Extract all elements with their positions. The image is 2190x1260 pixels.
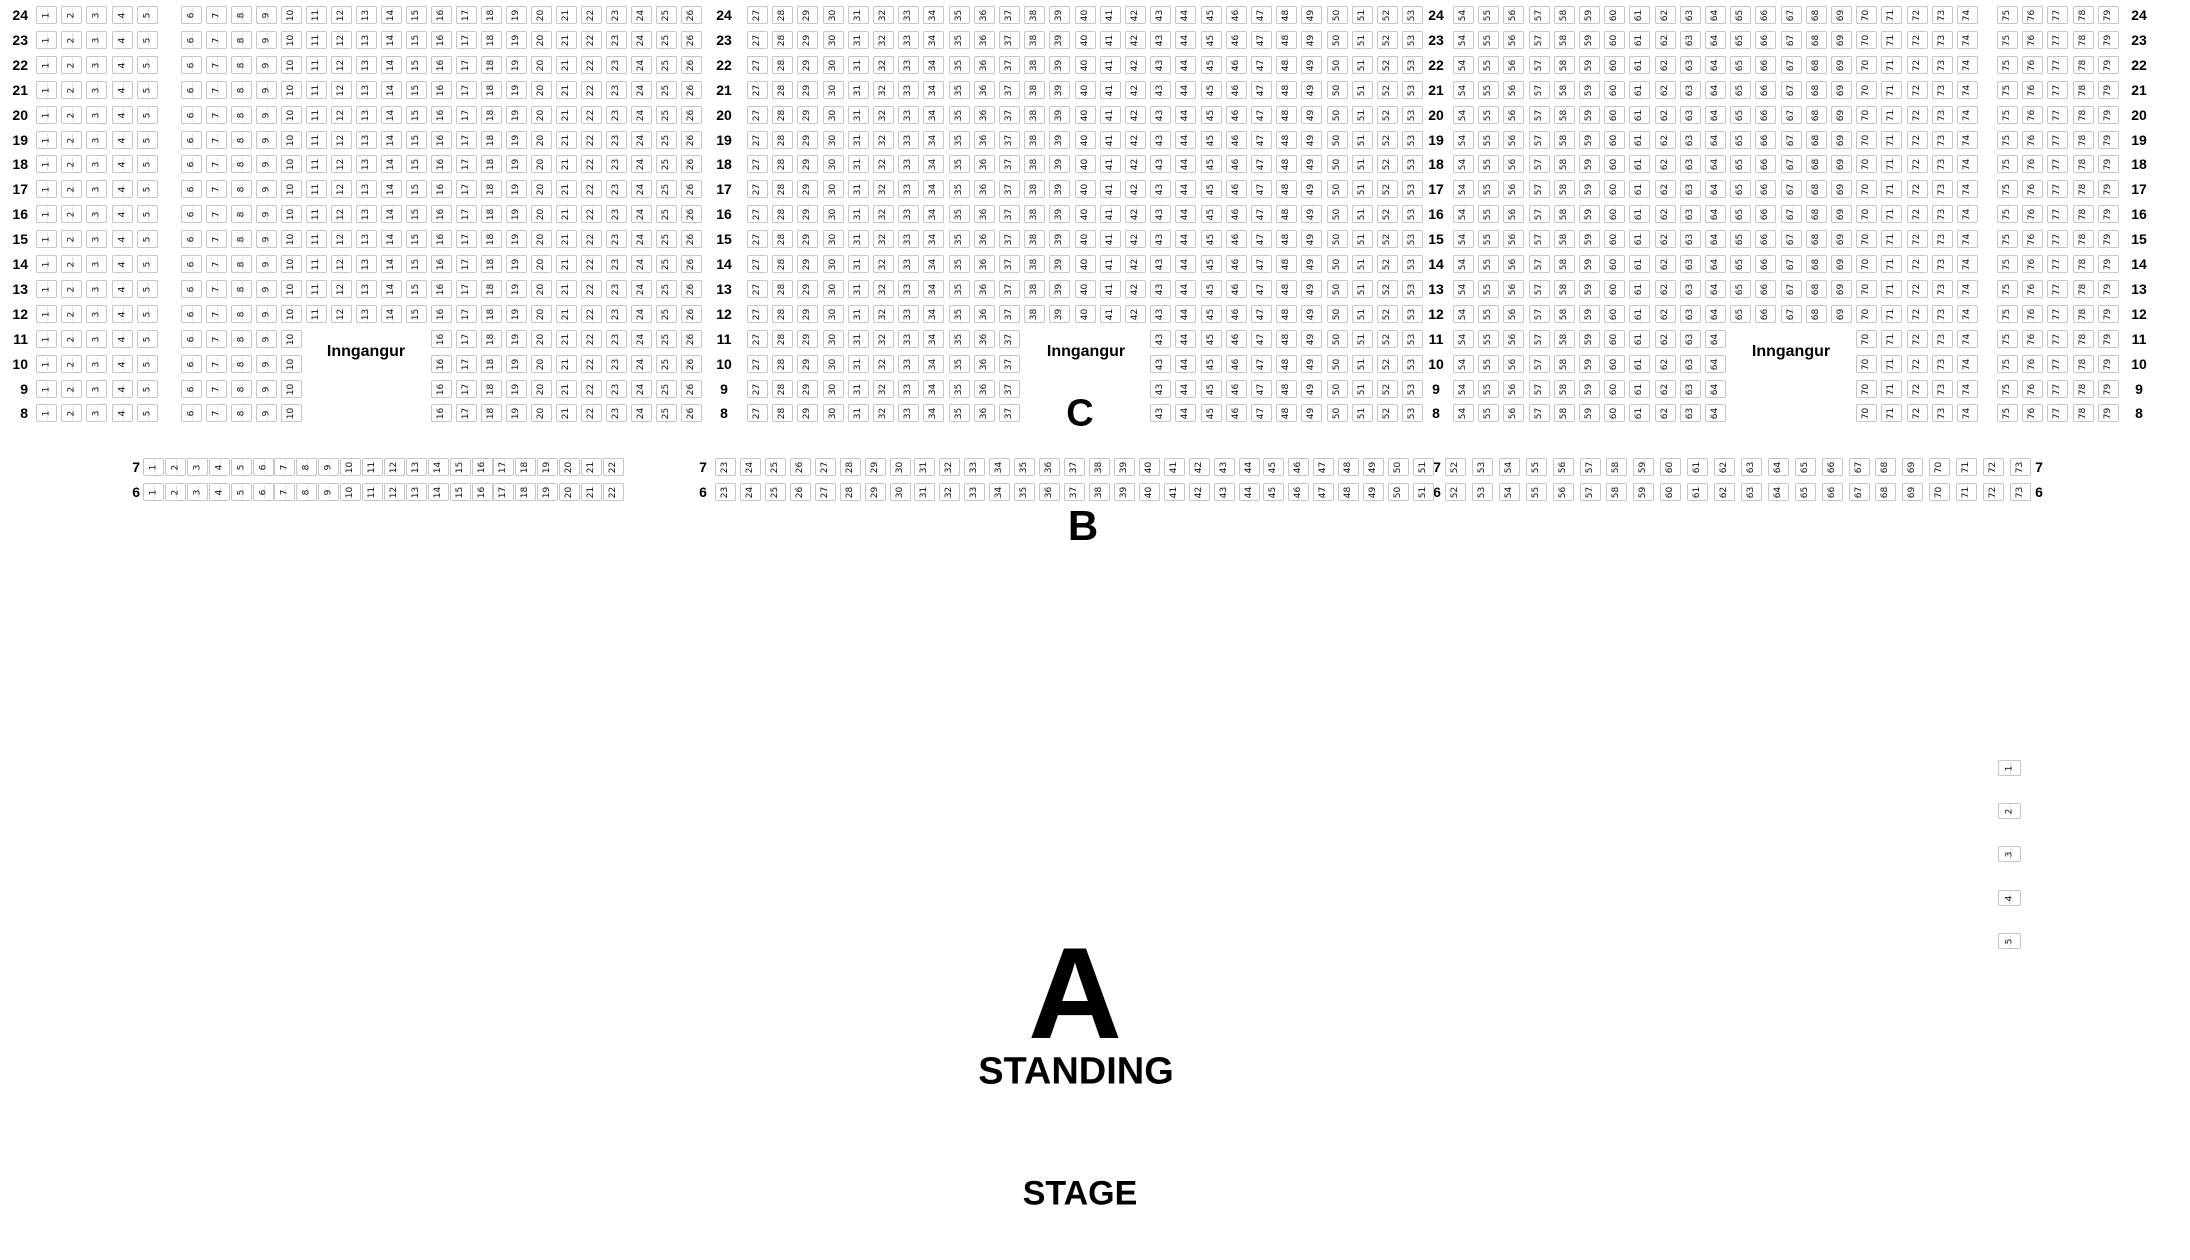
seat[interactable]: 28 — [772, 56, 793, 74]
seat[interactable]: 52 — [1377, 6, 1398, 24]
seat[interactable]: 58 — [1554, 106, 1575, 124]
seat[interactable]: 30 — [823, 280, 844, 298]
seat[interactable]: 68 — [1806, 155, 1827, 173]
seat[interactable]: 60 — [1604, 355, 1625, 373]
seat[interactable]: 35 — [949, 255, 970, 273]
seat[interactable]: 63 — [1680, 106, 1701, 124]
seat[interactable]: 64 — [1705, 6, 1726, 24]
seat[interactable]: 75 — [1997, 56, 2018, 74]
seat[interactable]: 67 — [1781, 31, 1802, 49]
seat[interactable]: 21 — [581, 458, 602, 476]
seat[interactable]: 42 — [1125, 6, 1146, 24]
seat[interactable]: 60 — [1604, 205, 1625, 223]
seat[interactable]: 56 — [1503, 355, 1524, 373]
seat[interactable]: 31 — [848, 56, 869, 74]
seat[interactable]: 18 — [515, 458, 536, 476]
seat[interactable]: 57 — [1529, 305, 1550, 323]
seat[interactable]: 78 — [2073, 81, 2094, 99]
seat[interactable]: 66 — [1822, 483, 1843, 501]
seat[interactable]: 15 — [406, 280, 427, 298]
seat[interactable]: 65 — [1795, 483, 1816, 501]
seat[interactable]: 58 — [1554, 280, 1575, 298]
seat[interactable]: 32 — [939, 483, 960, 501]
seat[interactable]: 51 — [1413, 458, 1434, 476]
seat[interactable]: 42 — [1125, 131, 1146, 149]
seat[interactable]: 76 — [2022, 255, 2043, 273]
seat[interactable]: 61 — [1629, 106, 1650, 124]
seat[interactable]: 15 — [406, 205, 427, 223]
seat[interactable]: 65 — [1730, 6, 1751, 24]
seat[interactable]: 51 — [1352, 205, 1373, 223]
seat[interactable]: 66 — [1755, 305, 1776, 323]
seat[interactable]: 53 — [1402, 6, 1423, 24]
seat[interactable]: 27 — [747, 131, 768, 149]
seat[interactable]: 47 — [1251, 205, 1272, 223]
seat[interactable]: 72 — [1907, 155, 1928, 173]
seat[interactable]: 53 — [1402, 106, 1423, 124]
seat[interactable]: 28 — [772, 106, 793, 124]
seat[interactable]: 46 — [1288, 483, 1309, 501]
seat[interactable]: 70 — [1856, 330, 1877, 348]
seat[interactable]: 78 — [2073, 106, 2094, 124]
seat[interactable]: 15 — [406, 230, 427, 248]
seat[interactable]: 26 — [790, 483, 811, 501]
seat[interactable]: 56 — [1503, 131, 1524, 149]
seat[interactable]: 79 — [2098, 355, 2119, 373]
seat[interactable]: 5 — [137, 280, 158, 298]
seat[interactable]: 7 — [206, 380, 227, 398]
seat[interactable]: 13 — [406, 483, 427, 501]
seat[interactable]: 72 — [1907, 230, 1928, 248]
seat[interactable]: 3 — [187, 458, 208, 476]
seat[interactable]: 31 — [848, 6, 869, 24]
seat[interactable]: 70 — [1929, 458, 1950, 476]
seat[interactable]: 12 — [331, 280, 352, 298]
seat[interactable]: 24 — [631, 180, 652, 198]
seat[interactable]: 76 — [2022, 106, 2043, 124]
seat[interactable]: 53 — [1402, 31, 1423, 49]
seat[interactable]: 7 — [206, 81, 227, 99]
seat[interactable]: 7 — [206, 56, 227, 74]
seat[interactable]: 57 — [1529, 131, 1550, 149]
seat[interactable]: 35 — [949, 380, 970, 398]
seat[interactable]: 30 — [823, 6, 844, 24]
seat[interactable]: 16 — [431, 355, 452, 373]
seat[interactable]: 20 — [531, 155, 552, 173]
seat[interactable]: 55 — [1478, 230, 1499, 248]
seat[interactable]: 42 — [1125, 280, 1146, 298]
seat[interactable]: 18 — [481, 255, 502, 273]
seat[interactable]: 65 — [1730, 81, 1751, 99]
seat[interactable]: 33 — [898, 404, 919, 422]
seat[interactable]: 72 — [1907, 380, 1928, 398]
seat[interactable]: 24 — [631, 230, 652, 248]
seat[interactable]: 23 — [606, 404, 627, 422]
seat[interactable]: 41 — [1100, 305, 1121, 323]
seat[interactable]: 39 — [1049, 305, 1070, 323]
seat[interactable]: 29 — [797, 155, 818, 173]
seat[interactable]: 7 — [206, 31, 227, 49]
seat[interactable]: 75 — [1997, 380, 2018, 398]
seat[interactable]: 72 — [1907, 31, 1928, 49]
seat[interactable]: 79 — [2098, 155, 2119, 173]
seat[interactable]: 44 — [1175, 255, 1196, 273]
seat[interactable]: 4 — [209, 483, 230, 501]
seat[interactable]: 11 — [306, 155, 327, 173]
seat[interactable]: 72 — [1983, 483, 2004, 501]
seat[interactable]: 59 — [1579, 31, 1600, 49]
seat[interactable]: 17 — [456, 180, 477, 198]
seat[interactable]: 47 — [1251, 355, 1272, 373]
seat[interactable]: 19 — [506, 380, 527, 398]
seat[interactable]: 60 — [1660, 458, 1681, 476]
seat[interactable]: 48 — [1276, 56, 1297, 74]
seat[interactable]: 73 — [1932, 31, 1953, 49]
seat[interactable]: 15 — [406, 155, 427, 173]
seat[interactable]: 35 — [949, 205, 970, 223]
seat[interactable]: 54 — [1453, 230, 1474, 248]
seat[interactable]: 33 — [898, 380, 919, 398]
seat[interactable]: 14 — [381, 305, 402, 323]
seat[interactable]: 15 — [450, 483, 471, 501]
seat[interactable]: 23 — [606, 280, 627, 298]
seat[interactable]: 52 — [1377, 255, 1398, 273]
seat[interactable]: 73 — [2010, 458, 2031, 476]
seat[interactable]: 17 — [456, 6, 477, 24]
seat[interactable]: 79 — [2098, 31, 2119, 49]
seat[interactable]: 1 — [36, 230, 57, 248]
seat[interactable]: 32 — [873, 280, 894, 298]
seat[interactable]: 31 — [848, 255, 869, 273]
seat[interactable]: 34 — [989, 458, 1010, 476]
seat[interactable]: 41 — [1100, 255, 1121, 273]
seat[interactable]: 60 — [1604, 404, 1625, 422]
seat[interactable]: 72 — [1907, 355, 1928, 373]
seat[interactable]: 15 — [406, 31, 427, 49]
seat[interactable]: 18 — [481, 56, 502, 74]
seat[interactable]: 4 — [112, 155, 133, 173]
seat[interactable]: 22 — [581, 56, 602, 74]
seat[interactable]: 3 — [187, 483, 208, 501]
seat[interactable]: 55 — [1478, 155, 1499, 173]
seat[interactable]: 16 — [431, 280, 452, 298]
seat[interactable]: 63 — [1680, 355, 1701, 373]
seat[interactable]: 21 — [556, 81, 577, 99]
seat[interactable]: 22 — [581, 330, 602, 348]
seat[interactable]: 67 — [1849, 483, 1870, 501]
seat[interactable]: 27 — [747, 280, 768, 298]
seat[interactable]: 47 — [1251, 255, 1272, 273]
seat[interactable]: 26 — [681, 230, 702, 248]
seat[interactable]: 68 — [1806, 6, 1827, 24]
seat[interactable]: 9 — [256, 56, 277, 74]
seat[interactable]: 75 — [1997, 106, 2018, 124]
seat[interactable]: 28 — [840, 458, 861, 476]
seat[interactable]: 52 — [1377, 155, 1398, 173]
seat[interactable]: 4 — [112, 106, 133, 124]
seat[interactable]: 46 — [1226, 31, 1247, 49]
seat[interactable]: 28 — [840, 483, 861, 501]
seat[interactable]: 32 — [873, 380, 894, 398]
seat[interactable]: 44 — [1175, 205, 1196, 223]
seat[interactable]: 79 — [2098, 56, 2119, 74]
seat[interactable]: 36 — [1039, 458, 1060, 476]
seat[interactable]: 36 — [974, 81, 995, 99]
seat[interactable]: 33 — [898, 81, 919, 99]
seat[interactable]: 68 — [1806, 205, 1827, 223]
seat[interactable]: 77 — [2047, 155, 2068, 173]
seat[interactable]: 17 — [456, 155, 477, 173]
seat[interactable]: 8 — [231, 355, 252, 373]
seat[interactable]: 8 — [231, 180, 252, 198]
seat[interactable]: 5 — [1998, 933, 2021, 949]
seat[interactable]: 57 — [1529, 380, 1550, 398]
seat[interactable]: 38 — [1024, 106, 1045, 124]
seat[interactable]: 10 — [281, 81, 302, 99]
seat[interactable]: 41 — [1100, 155, 1121, 173]
seat[interactable]: 25 — [656, 330, 677, 348]
seat[interactable]: 21 — [556, 56, 577, 74]
seat[interactable]: 56 — [1503, 255, 1524, 273]
seat[interactable]: 45 — [1201, 330, 1222, 348]
seat[interactable]: 5 — [137, 81, 158, 99]
seat[interactable]: 63 — [1680, 380, 1701, 398]
seat[interactable]: 61 — [1629, 31, 1650, 49]
seat[interactable]: 14 — [381, 255, 402, 273]
seat[interactable]: 72 — [1907, 180, 1928, 198]
seat[interactable]: 34 — [923, 305, 944, 323]
seat[interactable]: 60 — [1604, 305, 1625, 323]
seat[interactable]: 76 — [2022, 131, 2043, 149]
seat[interactable]: 59 — [1579, 106, 1600, 124]
seat[interactable]: 77 — [2047, 31, 2068, 49]
seat[interactable]: 29 — [797, 81, 818, 99]
seat[interactable]: 36 — [974, 131, 995, 149]
seat[interactable]: 13 — [356, 180, 377, 198]
seat[interactable]: 1 — [36, 305, 57, 323]
seat[interactable]: 13 — [356, 255, 377, 273]
seat[interactable]: 38 — [1089, 483, 1110, 501]
seat[interactable]: 20 — [531, 355, 552, 373]
seat[interactable]: 52 — [1445, 458, 1466, 476]
seat[interactable]: 21 — [556, 131, 577, 149]
seat[interactable]: 8 — [231, 404, 252, 422]
seat[interactable]: 51 — [1352, 230, 1373, 248]
seat[interactable]: 66 — [1755, 280, 1776, 298]
seat[interactable]: 44 — [1175, 180, 1196, 198]
seat[interactable]: 18 — [481, 106, 502, 124]
seat[interactable]: 37 — [999, 56, 1020, 74]
seat[interactable]: 23 — [606, 106, 627, 124]
seat[interactable]: 62 — [1714, 483, 1735, 501]
seat[interactable]: 66 — [1755, 106, 1776, 124]
seat[interactable]: 45 — [1201, 230, 1222, 248]
seat[interactable]: 48 — [1338, 458, 1359, 476]
seat[interactable]: 16 — [431, 131, 452, 149]
seat[interactable]: 2 — [61, 205, 82, 223]
seat[interactable]: 60 — [1604, 6, 1625, 24]
seat[interactable]: 2 — [1998, 803, 2021, 819]
seat[interactable]: 28 — [772, 355, 793, 373]
seat[interactable]: 38 — [1024, 131, 1045, 149]
seat[interactable]: 6 — [181, 56, 202, 74]
seat[interactable]: 37 — [999, 355, 1020, 373]
seat[interactable]: 57 — [1529, 255, 1550, 273]
seat[interactable]: 42 — [1189, 483, 1210, 501]
seat[interactable]: 41 — [1100, 56, 1121, 74]
seat[interactable]: 1 — [36, 280, 57, 298]
seat[interactable]: 17 — [493, 483, 514, 501]
seat[interactable]: 57 — [1580, 483, 1601, 501]
seat[interactable]: 34 — [989, 483, 1010, 501]
seat[interactable]: 68 — [1806, 180, 1827, 198]
seat[interactable]: 17 — [456, 305, 477, 323]
seat[interactable]: 71 — [1881, 404, 1902, 422]
seat[interactable]: 54 — [1499, 483, 1520, 501]
seat[interactable]: 53 — [1402, 255, 1423, 273]
seat[interactable]: 11 — [306, 230, 327, 248]
seat[interactable]: 62 — [1655, 131, 1676, 149]
seat[interactable]: 58 — [1554, 155, 1575, 173]
seat[interactable]: 42 — [1125, 106, 1146, 124]
seat[interactable]: 63 — [1680, 131, 1701, 149]
seat[interactable]: 27 — [747, 380, 768, 398]
seat[interactable]: 27 — [747, 180, 768, 198]
seat[interactable]: 78 — [2073, 180, 2094, 198]
seat[interactable]: 25 — [656, 131, 677, 149]
seat[interactable]: 18 — [481, 305, 502, 323]
seat[interactable]: 38 — [1024, 205, 1045, 223]
seat[interactable]: 71 — [1881, 56, 1902, 74]
seat[interactable]: 31 — [848, 230, 869, 248]
seat[interactable]: 78 — [2073, 155, 2094, 173]
seat[interactable]: 25 — [656, 31, 677, 49]
seat[interactable]: 44 — [1175, 404, 1196, 422]
seat[interactable]: 56 — [1503, 155, 1524, 173]
seat[interactable]: 77 — [2047, 355, 2068, 373]
seat[interactable]: 26 — [681, 280, 702, 298]
seat[interactable]: 48 — [1276, 81, 1297, 99]
seat[interactable]: 17 — [456, 280, 477, 298]
seat[interactable]: 67 — [1781, 56, 1802, 74]
seat[interactable]: 20 — [531, 330, 552, 348]
seat[interactable]: 36 — [974, 305, 995, 323]
seat[interactable]: 74 — [1957, 31, 1978, 49]
seat[interactable]: 20 — [531, 230, 552, 248]
seat[interactable]: 19 — [537, 458, 558, 476]
seat[interactable]: 35 — [949, 155, 970, 173]
seat[interactable]: 41 — [1100, 180, 1121, 198]
seat[interactable]: 68 — [1806, 255, 1827, 273]
seat[interactable]: 19 — [506, 205, 527, 223]
seat[interactable]: 48 — [1276, 131, 1297, 149]
seat[interactable]: 27 — [747, 230, 768, 248]
seat[interactable]: 76 — [2022, 205, 2043, 223]
seat[interactable]: 24 — [631, 155, 652, 173]
seat[interactable]: 77 — [2047, 56, 2068, 74]
seat[interactable]: 39 — [1049, 6, 1070, 24]
seat[interactable]: 56 — [1503, 330, 1524, 348]
seat[interactable]: 5 — [137, 230, 158, 248]
seat[interactable]: 49 — [1301, 380, 1322, 398]
seat[interactable]: 65 — [1730, 280, 1751, 298]
seat[interactable]: 62 — [1655, 355, 1676, 373]
seat[interactable]: 79 — [2098, 180, 2119, 198]
seat[interactable]: 50 — [1327, 355, 1348, 373]
seat[interactable]: 47 — [1251, 404, 1272, 422]
seat[interactable]: 66 — [1755, 6, 1776, 24]
seat[interactable]: 30 — [823, 305, 844, 323]
seat[interactable]: 42 — [1125, 81, 1146, 99]
seat[interactable]: 39 — [1049, 81, 1070, 99]
seat[interactable]: 31 — [848, 280, 869, 298]
seat[interactable]: 58 — [1554, 380, 1575, 398]
seat[interactable]: 44 — [1175, 106, 1196, 124]
seat[interactable]: 23 — [715, 458, 736, 476]
seat[interactable]: 51 — [1352, 380, 1373, 398]
seat[interactable]: 70 — [1856, 230, 1877, 248]
seat[interactable]: 61 — [1629, 380, 1650, 398]
seat[interactable]: 3 — [86, 106, 107, 124]
seat[interactable]: 15 — [406, 106, 427, 124]
seat[interactable]: 28 — [772, 31, 793, 49]
seat[interactable]: 64 — [1705, 205, 1726, 223]
seat[interactable]: 7 — [206, 205, 227, 223]
seat[interactable]: 3 — [86, 131, 107, 149]
seat[interactable]: 47 — [1251, 305, 1272, 323]
seat[interactable]: 18 — [481, 81, 502, 99]
seat[interactable]: 2 — [61, 305, 82, 323]
seat[interactable]: 55 — [1478, 305, 1499, 323]
seat[interactable]: 1 — [1998, 760, 2021, 776]
seat[interactable]: 62 — [1655, 330, 1676, 348]
seat[interactable]: 13 — [356, 230, 377, 248]
seat[interactable]: 8 — [231, 380, 252, 398]
seat[interactable]: 33 — [898, 56, 919, 74]
seat[interactable]: 56 — [1503, 380, 1524, 398]
seat[interactable]: 8 — [231, 131, 252, 149]
seat[interactable]: 19 — [506, 255, 527, 273]
seat[interactable]: 12 — [384, 458, 405, 476]
seat[interactable]: 52 — [1377, 106, 1398, 124]
seat[interactable]: 78 — [2073, 330, 2094, 348]
seat[interactable]: 15 — [406, 305, 427, 323]
seat[interactable]: 63 — [1680, 180, 1701, 198]
seat[interactable]: 6 — [181, 180, 202, 198]
seat[interactable]: 50 — [1327, 131, 1348, 149]
seat[interactable]: 48 — [1276, 330, 1297, 348]
seat[interactable]: 47 — [1251, 155, 1272, 173]
seat[interactable]: 23 — [715, 483, 736, 501]
seat[interactable]: 40 — [1075, 180, 1096, 198]
seat[interactable]: 29 — [797, 355, 818, 373]
seat[interactable]: 22 — [581, 31, 602, 49]
seat[interactable]: 68 — [1806, 56, 1827, 74]
seat[interactable]: 70 — [1856, 205, 1877, 223]
seat[interactable]: 43 — [1150, 205, 1171, 223]
seat[interactable]: 35 — [949, 81, 970, 99]
seat[interactable]: 40 — [1075, 155, 1096, 173]
seat[interactable]: 21 — [556, 380, 577, 398]
seat[interactable]: 70 — [1856, 404, 1877, 422]
seat[interactable]: 30 — [823, 155, 844, 173]
seat[interactable]: 33 — [964, 458, 985, 476]
seat[interactable]: 7 — [206, 106, 227, 124]
seat[interactable]: 10 — [281, 6, 302, 24]
seat[interactable]: 73 — [1932, 330, 1953, 348]
seat[interactable]: 12 — [331, 305, 352, 323]
seat[interactable]: 25 — [656, 56, 677, 74]
